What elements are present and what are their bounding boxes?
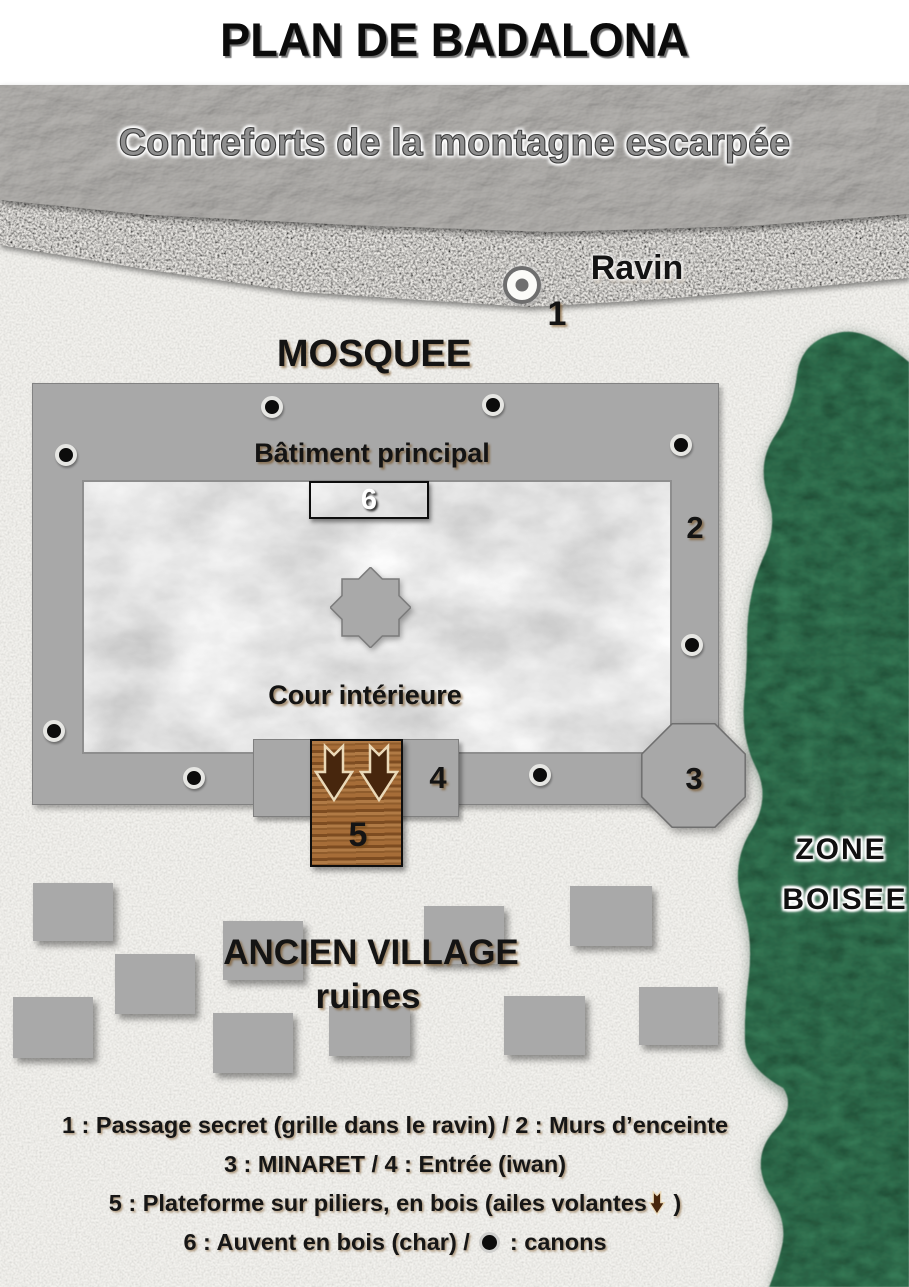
ruin-block [504,996,585,1055]
village-label-line2: ruines [315,977,420,1017]
main-building-label: Bâtiment principal [254,438,490,469]
canon-icon [681,634,703,656]
canon-icon [529,764,551,786]
ruin-block [639,987,718,1045]
page-title: PLAN DE BADALONA [18,12,891,67]
canon-icon [479,1232,500,1253]
minaret-number: 3 [685,761,702,797]
canon-icon [43,720,65,742]
flying-wing-arrow-icon [359,743,399,803]
canon-icon [55,444,77,466]
mosque-title: MOSQUEE [277,333,471,376]
legend-line-4: 6 : Auvent en bois (char) / : canons [0,1223,790,1262]
canon-icon [670,434,692,456]
canon-icon [183,767,205,789]
legend-line-2: 3 : MINARET / 4 : Entrée (iwan) [0,1145,790,1184]
ruin-block [33,883,113,941]
wing-arrow-icon [648,1191,666,1215]
wooden-awning: 6 [309,481,429,519]
ravine-label: Ravin [591,249,684,288]
awning-number: 6 [361,484,377,517]
legend-number-1: 1 [548,295,567,334]
canon-icon [261,396,283,418]
entrance-number: 4 [429,760,446,796]
wooded-zone-label-line2: BOISEE [782,883,907,917]
secret-passage-marker-icon [503,266,541,304]
platform-number: 5 [349,816,368,855]
legend-line-1: 1 : Passage secret (grille dans le ravin… [0,1106,790,1145]
village-label-line1: ANCIEN VILLAGE [223,933,519,973]
flying-wing-arrow-icon [314,743,354,803]
ruin-block [213,1013,293,1073]
map-plan-badalona: PLAN DE BADALONA Contreforts de la monta… [0,0,909,1287]
wooded-zone-label-line1: ZONE [795,833,886,867]
legend-line-3: 5 : Plateforme sur piliers, en bois (ail… [0,1184,790,1223]
map-legend: 1 : Passage secret (grille dans le ravin… [0,1106,790,1262]
ruin-block [115,954,195,1014]
ruin-block [570,886,652,946]
walls-number: 2 [686,510,703,546]
courtyard-label: Cour intérieure [268,680,462,711]
ruin-block [13,997,93,1058]
courtyard-star-icon [330,567,411,648]
mountain-label: Contreforts de la montagne escarpée [0,122,909,165]
canon-icon [482,394,504,416]
